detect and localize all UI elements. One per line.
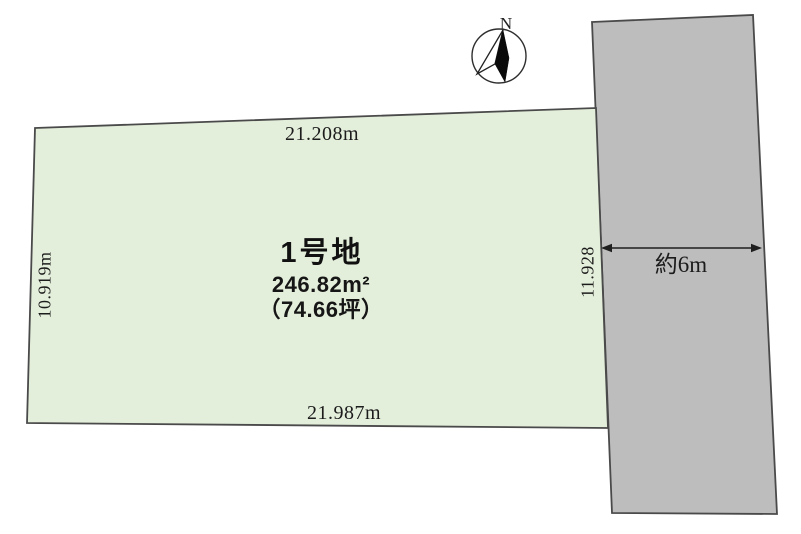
dimension-left-label: 10.919m <box>34 251 54 318</box>
dimension-right-label: 11.928 <box>577 246 597 298</box>
land-plot-diagram: N 1号地 246.82m² （74.66坪） 21.208m 21.987m … <box>0 0 801 534</box>
plot-diagram-canvas: N 1号地 246.82m² （74.66坪） 21.208m 21.987m … <box>0 0 801 534</box>
lot-area-sqm-label: 246.82m² <box>272 272 370 297</box>
dimension-top-label: 21.208m <box>285 123 359 145</box>
road-width-label: 約6m <box>655 252 708 277</box>
dimension-bottom-label: 21.987m <box>307 402 381 424</box>
lot-name-label: 1号地 <box>280 236 363 269</box>
lot-area-tsubo-label: （74.66坪） <box>258 297 383 322</box>
